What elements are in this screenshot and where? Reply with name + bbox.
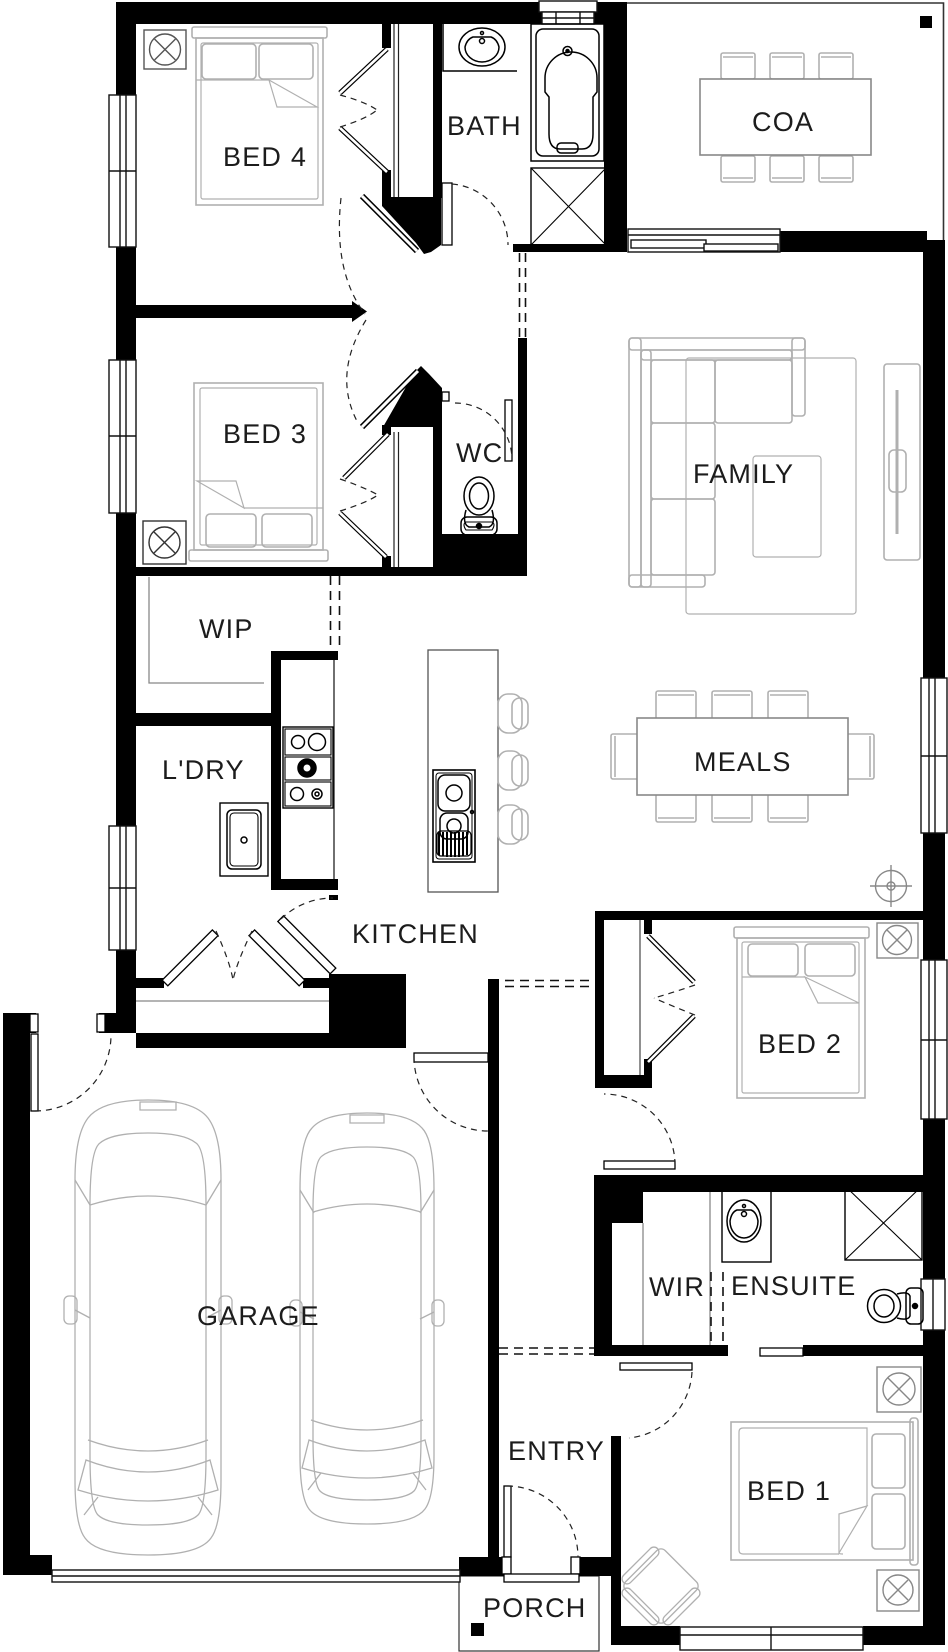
svg-text:ENTRY: ENTRY [508, 1436, 605, 1466]
svg-text:BED 1: BED 1 [747, 1476, 831, 1506]
svg-text:L'DRY: L'DRY [162, 755, 245, 785]
svg-text:MEALS: MEALS [694, 747, 792, 777]
svg-text:WC: WC [456, 438, 503, 468]
svg-text:ENSUITE: ENSUITE [731, 1271, 856, 1301]
svg-text:WIR: WIR [649, 1272, 705, 1302]
svg-text:WIP: WIP [199, 614, 254, 644]
svg-text:BED 2: BED 2 [758, 1029, 842, 1059]
svg-text:COA: COA [752, 107, 814, 137]
svg-text:BED 4: BED 4 [223, 142, 307, 172]
svg-text:BED 3: BED 3 [223, 419, 307, 449]
svg-text:PORCH: PORCH [483, 1593, 587, 1623]
svg-text:GARAGE: GARAGE [197, 1301, 320, 1331]
svg-text:KITCHEN: KITCHEN [352, 919, 479, 949]
svg-text:FAMILY: FAMILY [693, 459, 794, 489]
svg-text:BATH: BATH [447, 111, 522, 141]
